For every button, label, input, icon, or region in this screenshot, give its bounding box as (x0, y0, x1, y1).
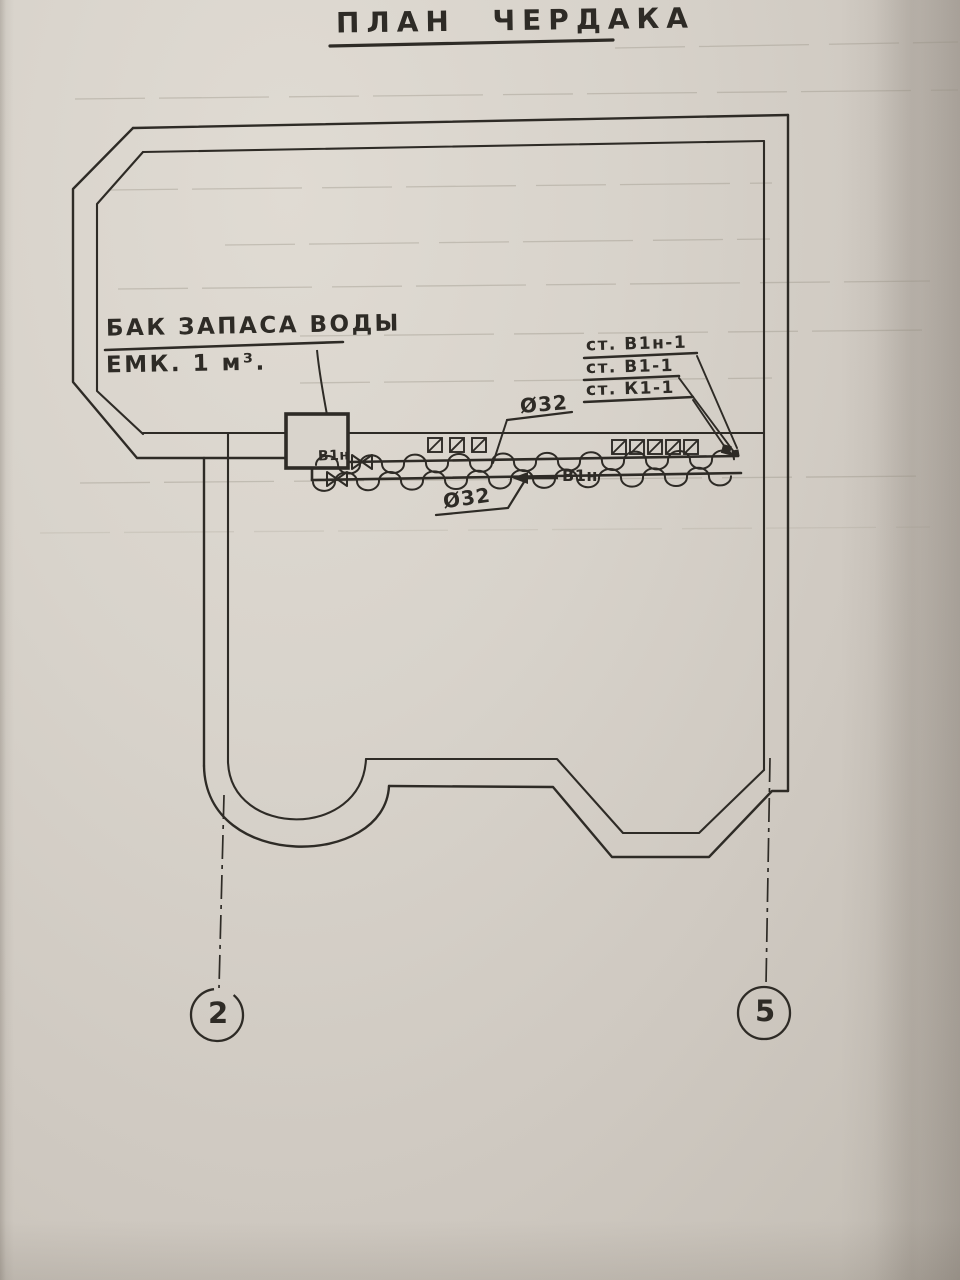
diameter-label-top: Ø32 (519, 392, 568, 417)
building-inner-outline (97, 141, 764, 833)
scanned-drawing-page: ПЛАН ЧЕРДАКА БАК ЗАПАСА ВОДЫ ЕМК. 1 м³. … (0, 0, 960, 1280)
centerline-axis-2 (219, 795, 224, 988)
tank-label-line1: БАК ЗАПАСА ВОДЫ (106, 311, 401, 340)
axis-number-2: 2 (208, 998, 228, 1028)
pipe-label-valve: В1н (318, 448, 350, 464)
flow-arrow-icon (512, 472, 558, 484)
axis-number-5: 5 (755, 996, 775, 1026)
title-underline (330, 40, 613, 46)
label-underlines (105, 40, 697, 515)
axis-centerlines (219, 758, 770, 988)
dia-top-leader (493, 420, 507, 463)
stack-label-k1: ст. К1-1 (586, 380, 675, 400)
support-marker-row-left (428, 438, 486, 452)
tank-label-underline (105, 342, 343, 350)
tank-label-line2: ЕМК. 1 м³. (106, 351, 267, 378)
stack-leader-lines (679, 356, 737, 456)
pipe-label-flow: В1н (562, 468, 598, 485)
support-markers (428, 438, 698, 454)
plan-drawing (0, 0, 960, 1280)
support-marker-row-right (612, 440, 698, 454)
stack-label-v1n: ст. В1н-1 (586, 335, 688, 355)
page-title: ПЛАН ЧЕРДАКА (336, 3, 695, 37)
stack-label-v1: ст. В1-1 (586, 358, 674, 378)
